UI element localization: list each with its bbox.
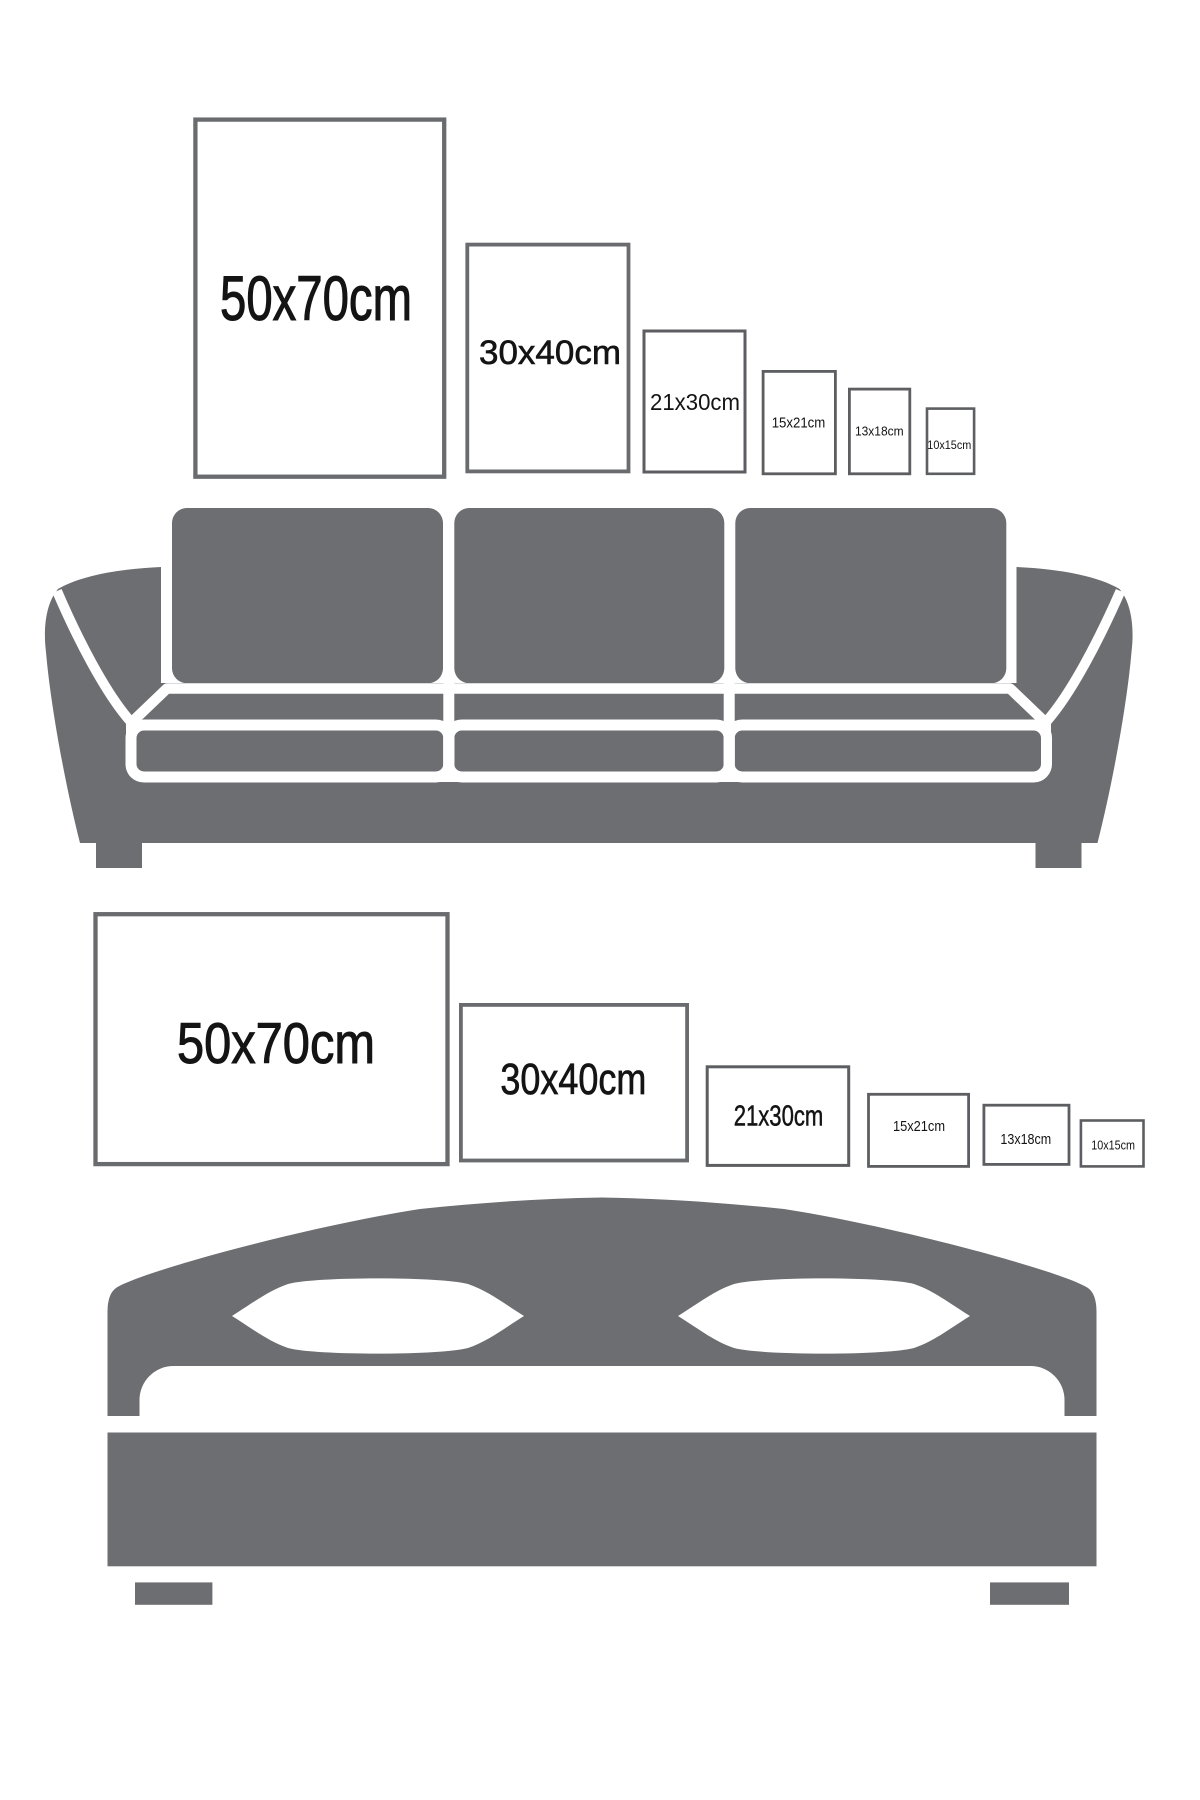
svg-text:21x30cm: 21x30cm [734,1100,824,1132]
svg-text:50x70cm: 50x70cm [220,264,412,334]
svg-text:13x18cm: 13x18cm [855,424,904,439]
svg-text:30x40cm: 30x40cm [479,334,621,372]
svg-text:50x70cm: 50x70cm [177,1012,375,1076]
svg-text:10x15cm: 10x15cm [927,438,971,452]
svg-text:30x40cm: 30x40cm [500,1056,646,1104]
svg-text:21x30cm: 21x30cm [650,389,740,415]
svg-text:13x18cm: 13x18cm [1000,1132,1051,1148]
svg-text:10x15cm: 10x15cm [1091,1138,1135,1153]
svg-text:15x21cm: 15x21cm [772,415,826,432]
svg-text:15x21cm: 15x21cm [893,1119,945,1135]
